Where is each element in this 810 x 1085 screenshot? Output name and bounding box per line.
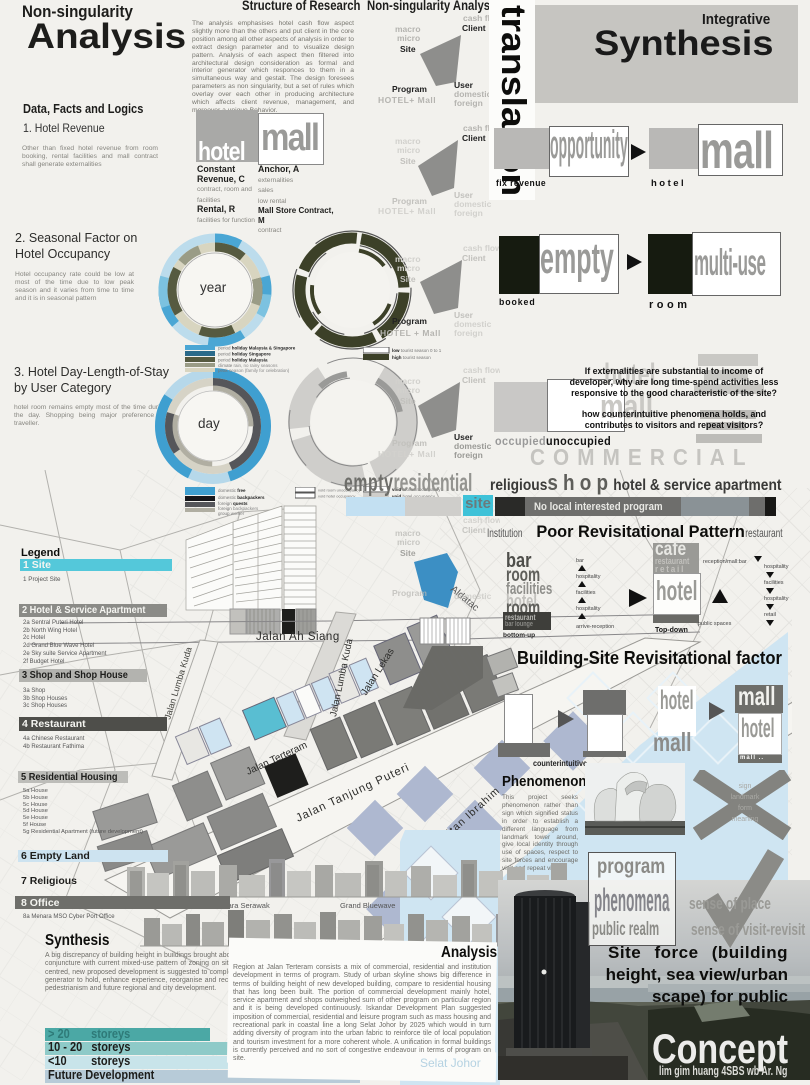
svg-text:Program: Program xyxy=(392,316,427,326)
svg-text:Program: Program xyxy=(392,84,427,94)
svg-text:HOTEL + Mall: HOTEL + Mall xyxy=(380,328,441,338)
svg-text:Site: Site xyxy=(400,396,416,406)
svg-text:micro: micro xyxy=(397,263,420,273)
svg-text:Client: Client xyxy=(462,253,486,263)
svg-text:peak season (family for celebr: peak season (family for celebration) xyxy=(218,368,290,373)
svg-text:Site: Site xyxy=(400,274,416,284)
svg-text:period holiday Malaysia & Sing: period holiday Malaysia & Singapore xyxy=(218,346,296,351)
svg-text:domestic free: domestic free xyxy=(218,488,246,493)
svg-text:Client: Client xyxy=(462,23,486,33)
svg-text:foreign: foreign xyxy=(454,98,483,108)
svg-text:HOTEL+ Mall: HOTEL+ Mall xyxy=(378,449,436,459)
svg-text:Program: Program xyxy=(392,438,427,448)
svg-text:Program: Program xyxy=(392,196,427,206)
svg-text:period holiday Singapore: period holiday Singapore xyxy=(218,352,271,357)
svg-text:period holiday Malaysia: period holiday Malaysia xyxy=(218,358,268,363)
svg-text:micro: micro xyxy=(397,385,420,395)
svg-text:meaning: meaning xyxy=(732,816,759,823)
svg-text:cash flow: cash flow xyxy=(463,365,500,375)
svg-text:foreign: foreign xyxy=(454,208,483,218)
svg-text:Client: Client xyxy=(462,133,486,143)
svg-text:Client: Client xyxy=(462,375,486,385)
svg-text:cash flow: cash flow xyxy=(463,243,500,253)
svg-text:micro: micro xyxy=(397,145,420,155)
svg-text:group worker: group worker xyxy=(218,511,245,516)
svg-text:micro: micro xyxy=(397,33,420,43)
svg-text:domestic backpackers: domestic backpackers xyxy=(218,495,265,500)
svg-text:Client: Client xyxy=(462,525,486,535)
svg-text:Site: Site xyxy=(400,156,416,166)
svg-text:HOTEL+ Mall: HOTEL+ Mall xyxy=(378,95,436,105)
svg-text:foreign: foreign xyxy=(454,450,483,460)
svg-text:HOTEL+ Mall: HOTEL+ Mall xyxy=(378,206,436,216)
svg-text:landmark: landmark xyxy=(731,794,760,801)
svg-text:form: form xyxy=(738,805,752,812)
svg-text:sign: sign xyxy=(739,783,752,790)
svg-text:Site: Site xyxy=(400,44,416,54)
svg-text:foreign: foreign xyxy=(454,328,483,338)
svg-text:low tourist season 0 to 1: low tourist season 0 to 1 xyxy=(392,348,442,353)
svg-text:Jalan Ah Siang: Jalan Ah Siang xyxy=(256,631,340,643)
